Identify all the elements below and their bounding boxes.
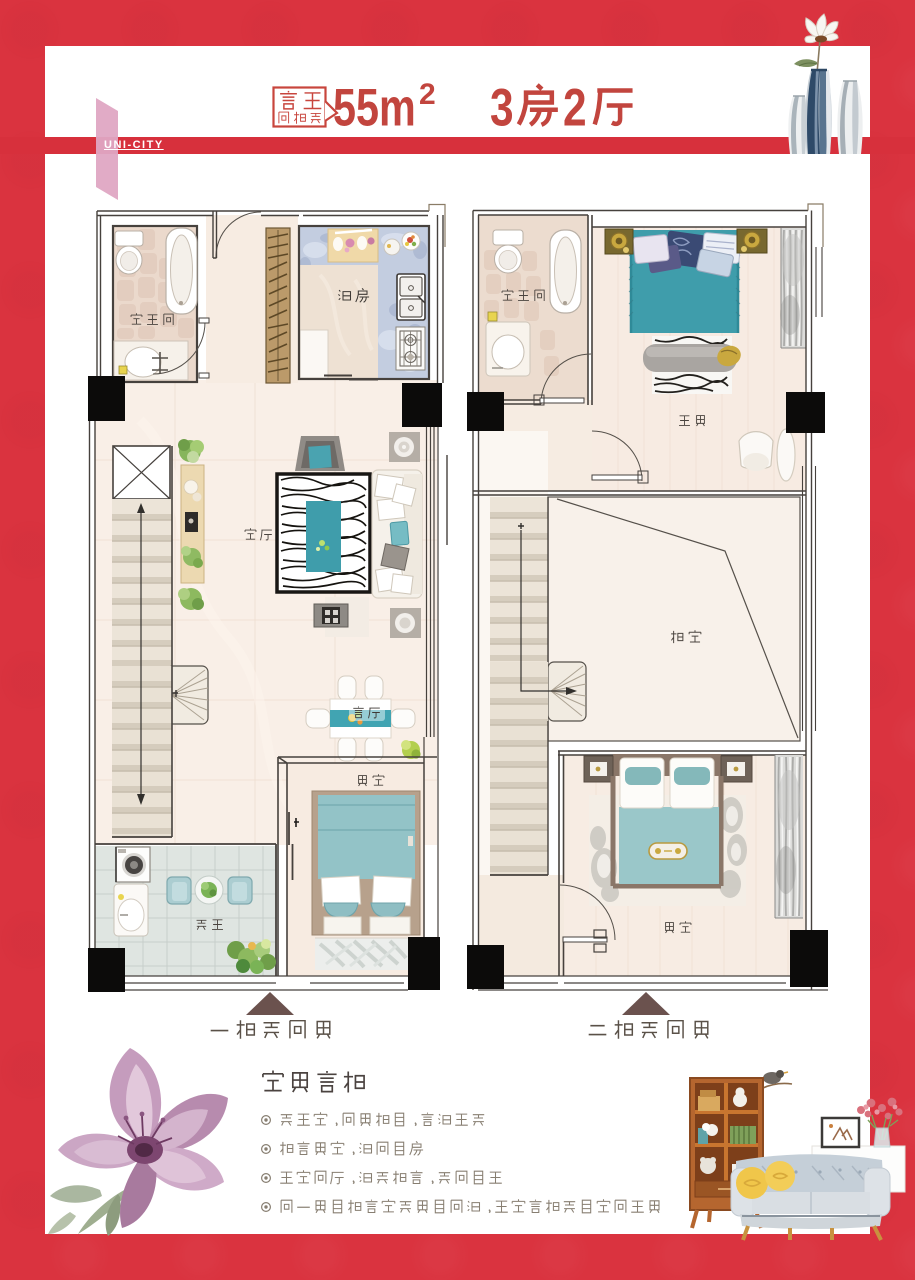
svg-text:3: 3 [490, 79, 514, 138]
svg-text:2: 2 [563, 79, 587, 138]
svg-text:55m: 55m [333, 79, 416, 138]
svg-text:2: 2 [419, 78, 436, 111]
